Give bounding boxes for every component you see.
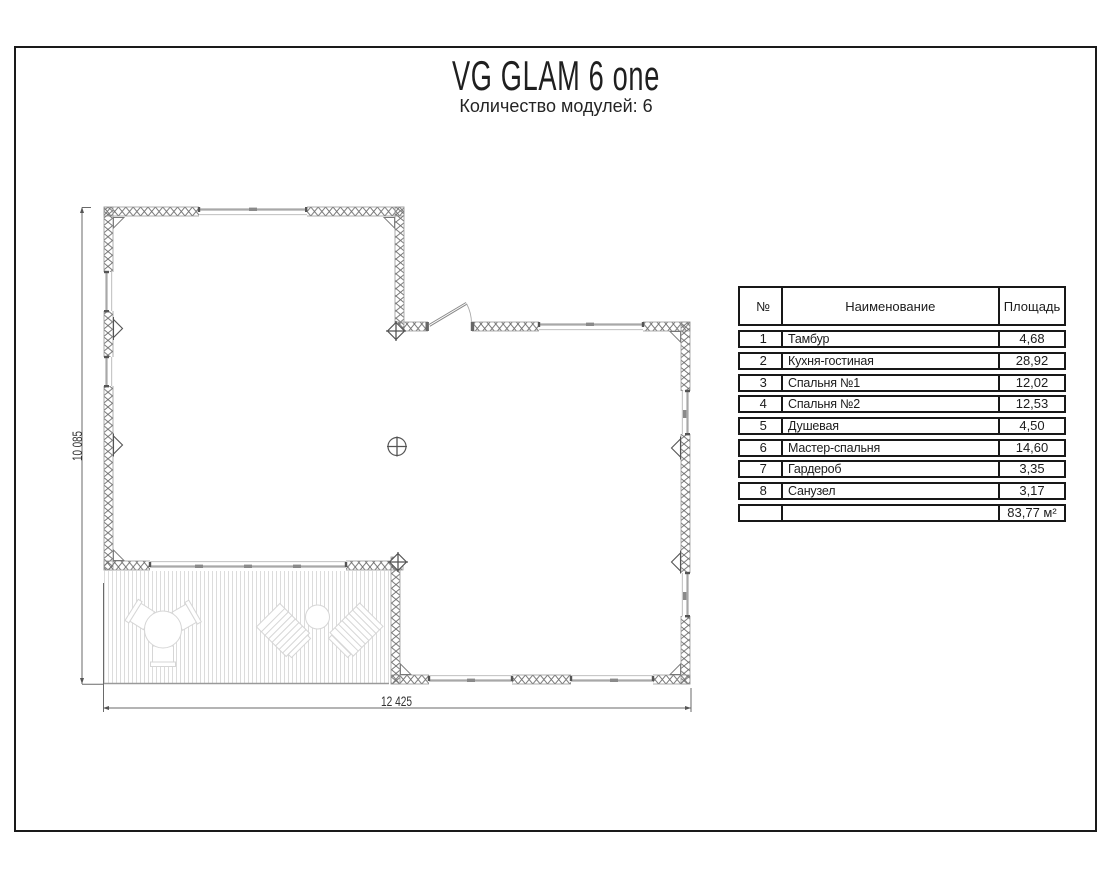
svg-text:10 085: 10 085 xyxy=(69,431,85,461)
svg-text:12 425: 12 425 xyxy=(381,693,412,709)
